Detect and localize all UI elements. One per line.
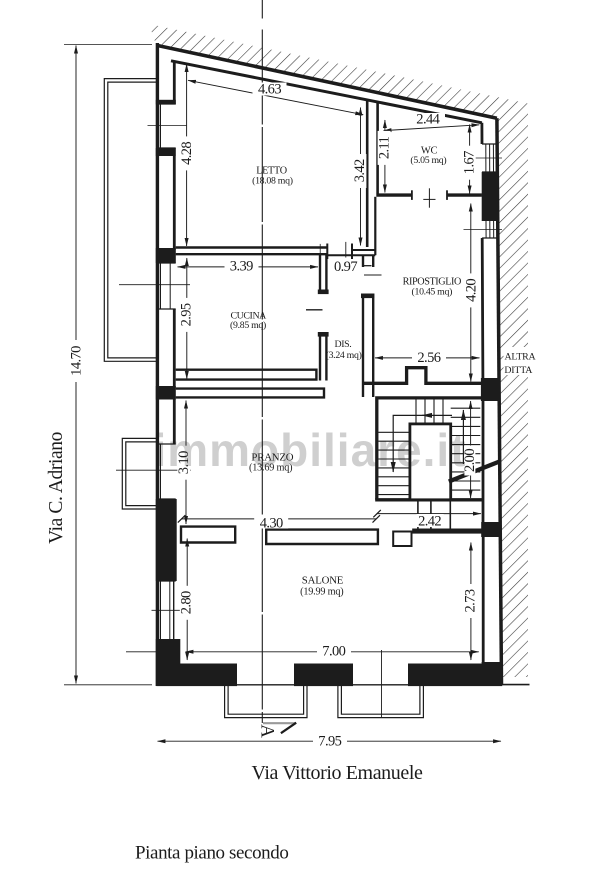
svg-text:2.42: 2.42	[418, 514, 441, 530]
svg-text:(10.45 mq): (10.45 mq)	[412, 286, 453, 297]
svg-text:immobiliare.it: immobiliare.it	[153, 424, 466, 476]
svg-text:(5.05 mq): (5.05 mq)	[410, 155, 446, 166]
svg-text:7.95: 7.95	[318, 733, 341, 749]
svg-text:4.28: 4.28	[179, 142, 195, 165]
svg-text:3.39: 3.39	[230, 259, 253, 275]
svg-text:4.20: 4.20	[463, 279, 479, 302]
svg-text:(13.69 mq): (13.69 mq)	[249, 463, 292, 474]
svg-text:(3.24 mq): (3.24 mq)	[326, 350, 362, 361]
svg-text:2.80: 2.80	[179, 591, 195, 614]
svg-text:(19.99 mq): (19.99 mq)	[300, 586, 343, 597]
svg-text:Via Vittorio Emanuele: Via Vittorio Emanuele	[251, 762, 423, 784]
svg-text:14.70: 14.70	[69, 346, 85, 376]
svg-text:DIS.: DIS.	[335, 339, 352, 350]
svg-text:1.67: 1.67	[461, 151, 477, 174]
svg-text:7.00: 7.00	[322, 643, 345, 659]
svg-text:2.44: 2.44	[416, 112, 440, 128]
svg-text:0.97: 0.97	[334, 259, 357, 275]
svg-text:2.95: 2.95	[178, 303, 194, 326]
svg-text:Pianta piano secondo: Pianta piano secondo	[135, 843, 288, 864]
svg-text:Via C. Adriano: Via C. Adriano	[46, 432, 67, 544]
svg-text:3.42: 3.42	[352, 159, 368, 182]
svg-text:(18.08 mq): (18.08 mq)	[252, 175, 293, 186]
svg-text:2.11: 2.11	[377, 136, 393, 159]
svg-text:4.63: 4.63	[258, 81, 281, 97]
svg-text:2.56: 2.56	[417, 350, 440, 366]
svg-text:(9.85 mq): (9.85 mq)	[230, 320, 266, 331]
svg-text:2.73: 2.73	[463, 589, 479, 612]
svg-text:A: A	[257, 724, 278, 738]
svg-text:4.30: 4.30	[260, 516, 283, 532]
svg-text:DITTA: DITTA	[504, 365, 533, 376]
svg-text:ALTRA: ALTRA	[504, 352, 536, 363]
svg-text:SALONE: SALONE	[302, 574, 344, 586]
